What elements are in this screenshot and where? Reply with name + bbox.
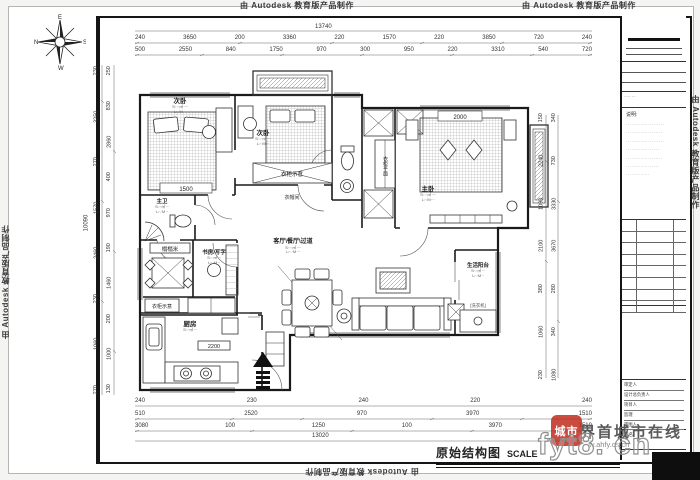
living-label: 客厅\餐厅\过道 S:··.·㎡ ···· L:··.·M ··· xyxy=(258,239,328,255)
balcony-washer xyxy=(460,310,496,332)
svg-text:衣柜示意: 衣柜示意 xyxy=(281,170,304,178)
bedroom2-note2: L:·.·M ··· xyxy=(234,142,292,147)
study-note2: L:·.·M ·· xyxy=(194,261,234,266)
dim-chain-bottom-1: 240230240220240 xyxy=(135,398,592,404)
title-block: ····· ··· 说明: ··························… xyxy=(620,16,686,460)
dim-chain-right-1: 1502240109021003801060230 xyxy=(537,115,547,377)
balcony-note2: L:·.·M ·· xyxy=(458,274,498,279)
dim-bottom-total: 13020 xyxy=(312,433,329,439)
corner-black-block xyxy=(652,452,700,480)
svg-text:衣柜示意: 衣柜示意 xyxy=(152,303,172,310)
bedroom2-label: 次卧 S:··.·㎡ ···· L:·.·M ··· xyxy=(234,130,292,147)
drawing-title: 原始结构图 xyxy=(436,446,501,460)
study-label: 书房/写字 S:·.·㎡ ··· L:·.·M ·· xyxy=(194,250,234,266)
title-block-notes: 说明: ····································… xyxy=(622,108,686,220)
svg-text:(洗衣机): (洗衣机) xyxy=(470,302,487,309)
bath-label: 主卫 S:·.·㎡ ··· L:·.·M ·· xyxy=(142,199,182,215)
scale-label: SCALE xyxy=(507,449,538,459)
title-underline xyxy=(436,463,620,468)
revision-table xyxy=(622,220,686,306)
title-block-field: ····· ··· xyxy=(622,92,686,108)
svg-text:衣帽间: 衣帽间 xyxy=(284,194,299,201)
svg-text:榻榻米: 榻榻米 xyxy=(162,245,179,253)
notes-heading: 说明: xyxy=(626,111,682,118)
master-bedroom-furniture xyxy=(406,111,517,223)
domain-watermark: fyt8. cn xyxy=(538,428,651,462)
kitchen-note1: S:·.·㎡ ··· xyxy=(162,328,218,333)
dim-chain-bottom-3: 3080100125010039701510 xyxy=(135,423,592,429)
title-block-rows xyxy=(622,62,686,92)
bathroom1-fixtures xyxy=(341,146,355,193)
svg-text:2000: 2000 xyxy=(453,115,467,121)
dim-top-total: 13740 xyxy=(315,24,332,30)
dim-chain-top-2: 500255084017509703009502203310540720 xyxy=(135,47,592,53)
balcony-label: 生活阳台 S:·.·㎡ ··· L:·.·M ·· xyxy=(458,263,498,279)
svg-text:衣柜平面: 衣柜平面 xyxy=(382,155,388,177)
dim-chain-right-2: 340730333036702803401080 xyxy=(550,115,560,377)
living-note2: L:··.·M ··· xyxy=(258,250,328,255)
living-room-furniture xyxy=(337,268,464,330)
notes-lines: ········································… xyxy=(626,121,682,180)
logo-bar xyxy=(628,38,680,41)
svg-text:2200: 2200 xyxy=(208,344,220,350)
kitchen-label: 厨房 S:·.·㎡ ··· xyxy=(162,321,218,333)
dim-chain-left-outer: 2303250270157024602301060270 xyxy=(92,68,102,392)
bathroom2-fixtures xyxy=(145,215,191,241)
dim-chain-left-inner: 250830286040097019014602001000130 xyxy=(105,68,115,392)
bay-window-bedroom2 xyxy=(253,71,332,95)
bath-note2: L:·.·M ·· xyxy=(142,210,182,215)
master-label: 主卧 S:··.·㎡ ···· L:·.·M ··· xyxy=(398,186,458,203)
bedroom1-label: 次卧 S:··.·㎡ ···· L:·.·M ··· xyxy=(150,98,210,115)
tatami-furniture xyxy=(145,243,193,312)
dining-table xyxy=(282,269,342,337)
dim-chain-bottom-2: 510252097039701510 xyxy=(135,411,592,417)
master-note2: L:·.·M ··· xyxy=(398,198,458,203)
bedroom1-note2: L:·.·M ··· xyxy=(150,110,210,115)
dim-left-total: 10090 xyxy=(83,215,89,232)
dim-chain-top-1: 2403650200336022015702203850720240 xyxy=(135,35,592,41)
svg-text:1500: 1500 xyxy=(179,187,193,193)
title-block-blank xyxy=(622,306,686,380)
cad-floorplan-screenshot: 由 Autodesk 教育版产品制作 由 Autodesk 教育版产品制作 由 … xyxy=(0,0,700,480)
title-block-logo-area xyxy=(622,16,686,62)
bedroom1-furniture xyxy=(148,108,232,193)
